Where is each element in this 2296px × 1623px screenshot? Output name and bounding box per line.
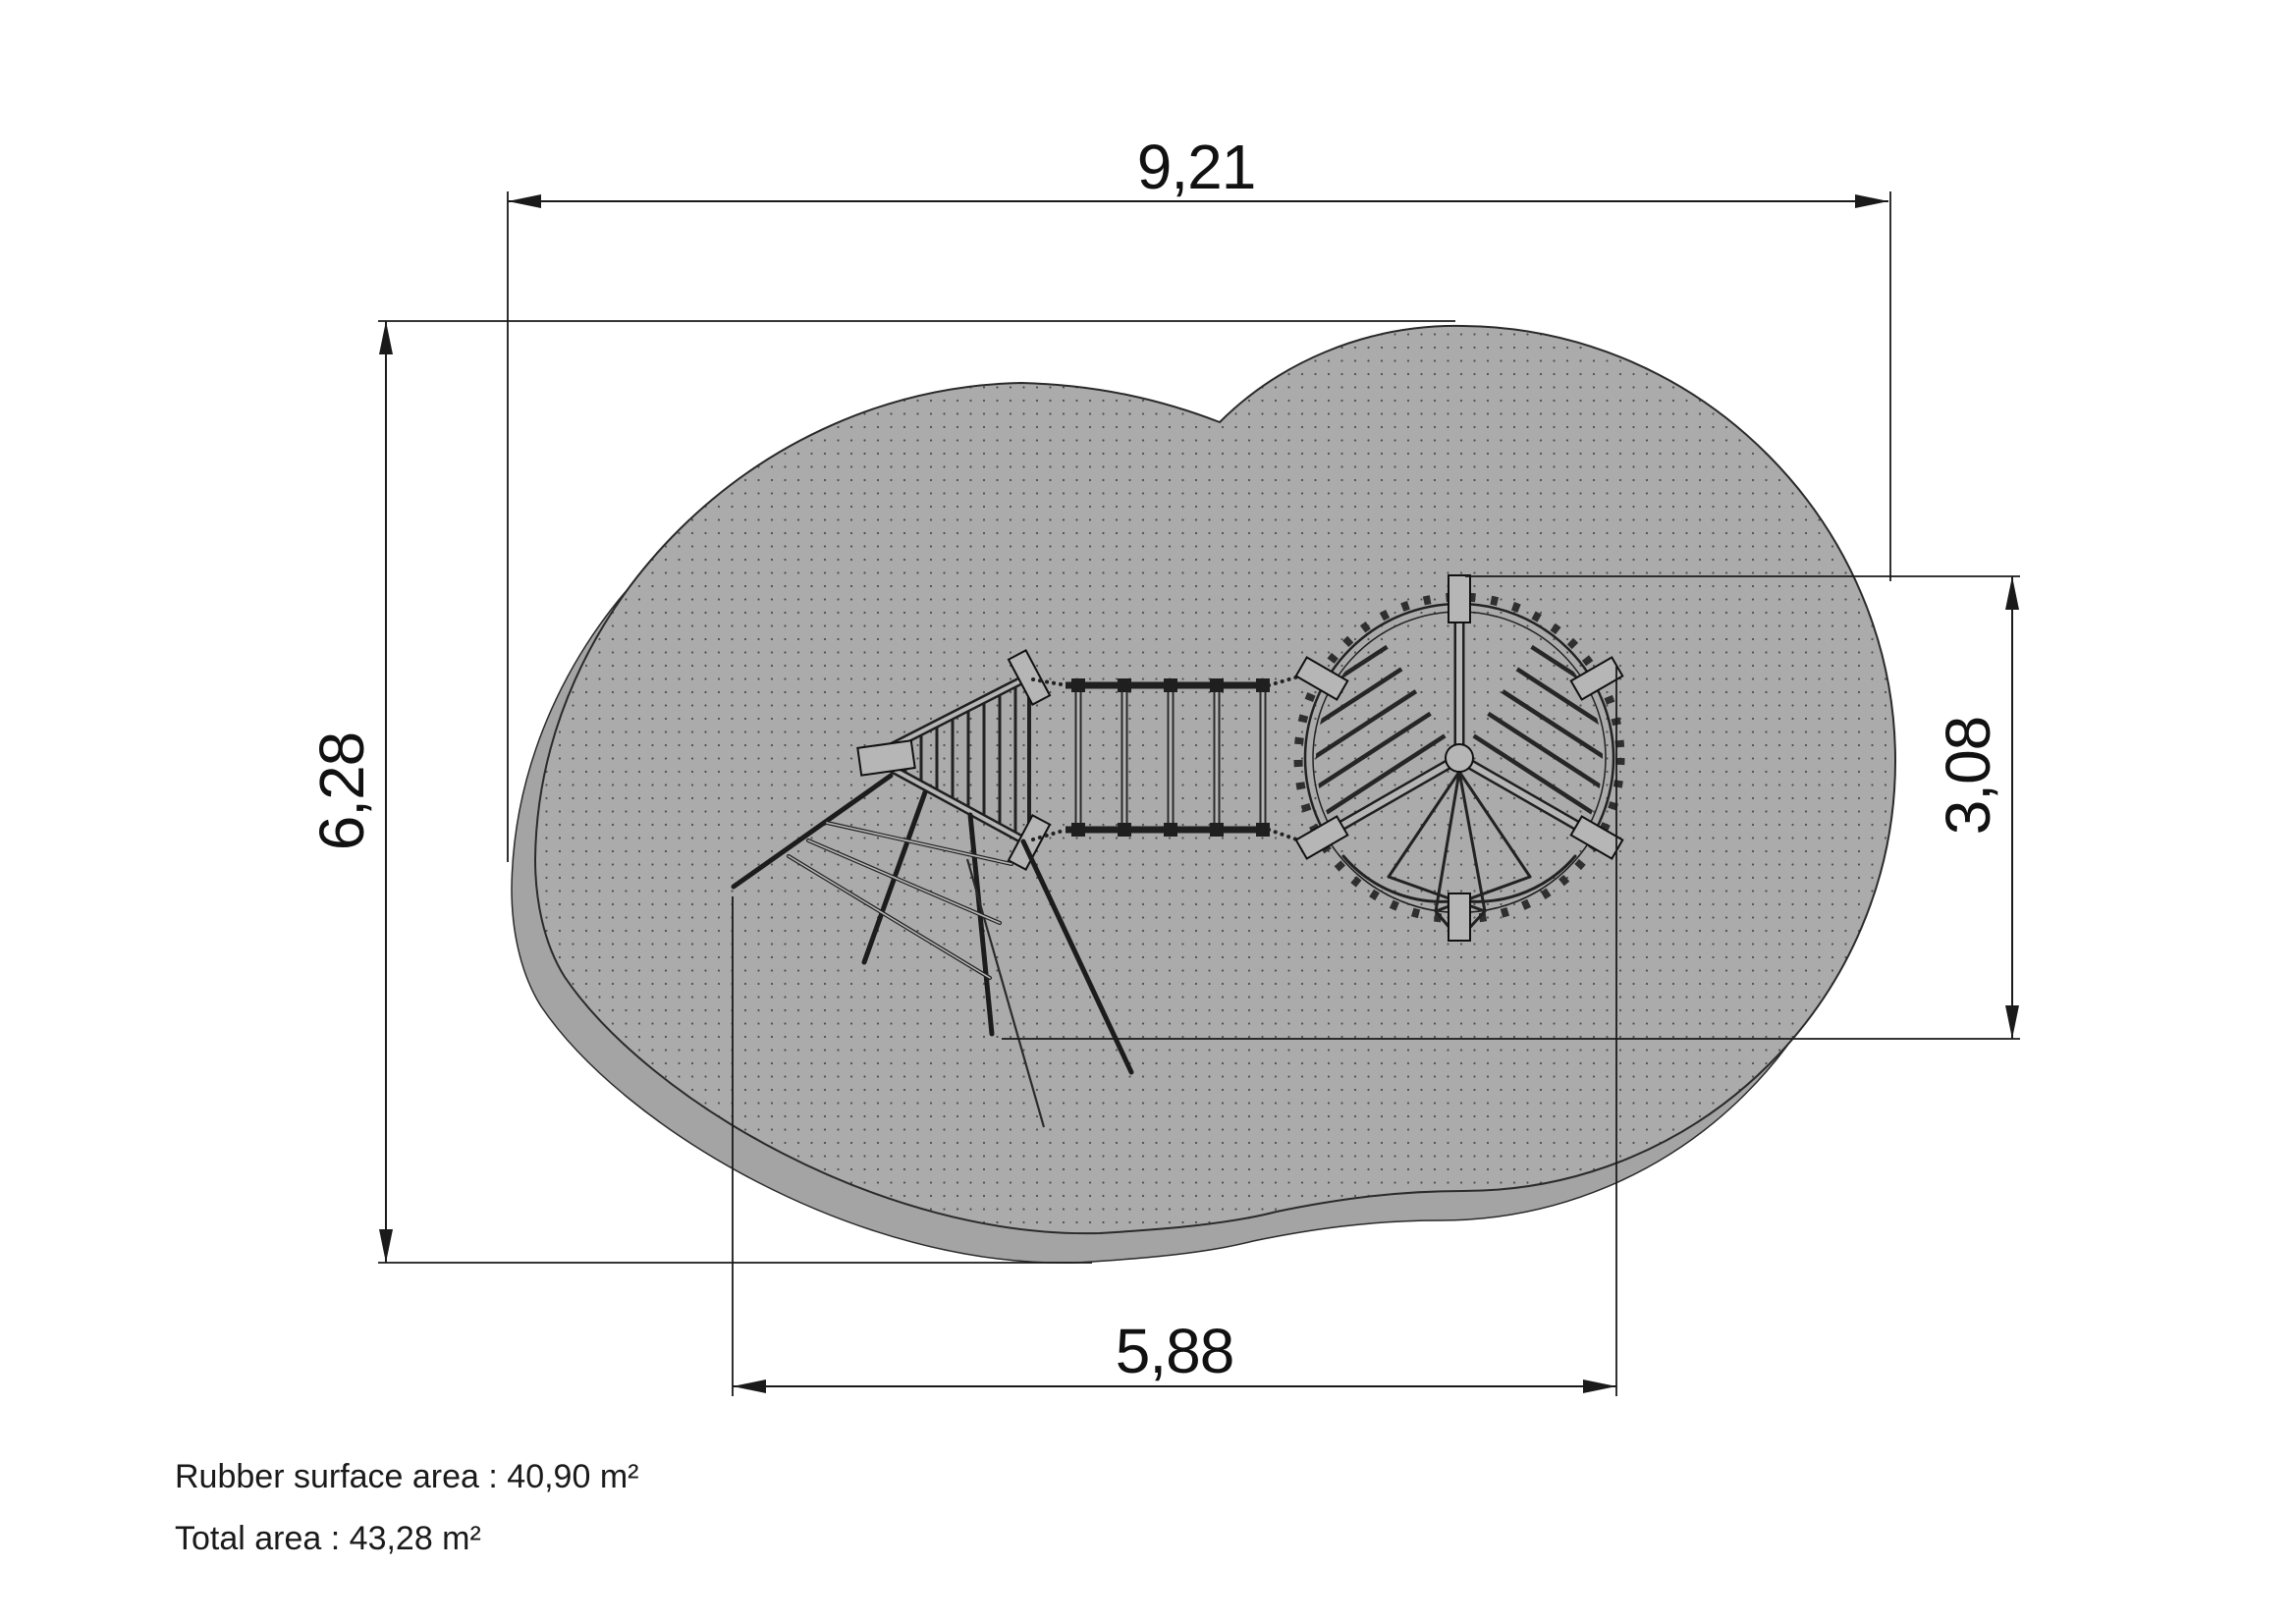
- site-plan-drawing: 9,21 6,28 3,08 5,88 Rubber surface area …: [0, 0, 2296, 1623]
- note-total-area: Total area : 43,28 m²: [175, 1520, 481, 1557]
- plan-canvas: 9,21 6,28 3,08 5,88 Rubber surface area …: [0, 0, 2296, 1623]
- dimension-label-height-right: 3,08: [1933, 717, 2003, 836]
- dimension-label-height-total: 6,28: [306, 732, 377, 851]
- dimension-label-width-bottom: 5,88: [1116, 1316, 1234, 1386]
- note-rubber-area: Rubber surface area : 40,90 m²: [175, 1458, 638, 1495]
- carousel-hub: [1446, 744, 1473, 772]
- dimension-label-width-total: 9,21: [1137, 132, 1256, 202]
- area-notes: Rubber surface area : 40,90 m² Total are…: [175, 1458, 638, 1557]
